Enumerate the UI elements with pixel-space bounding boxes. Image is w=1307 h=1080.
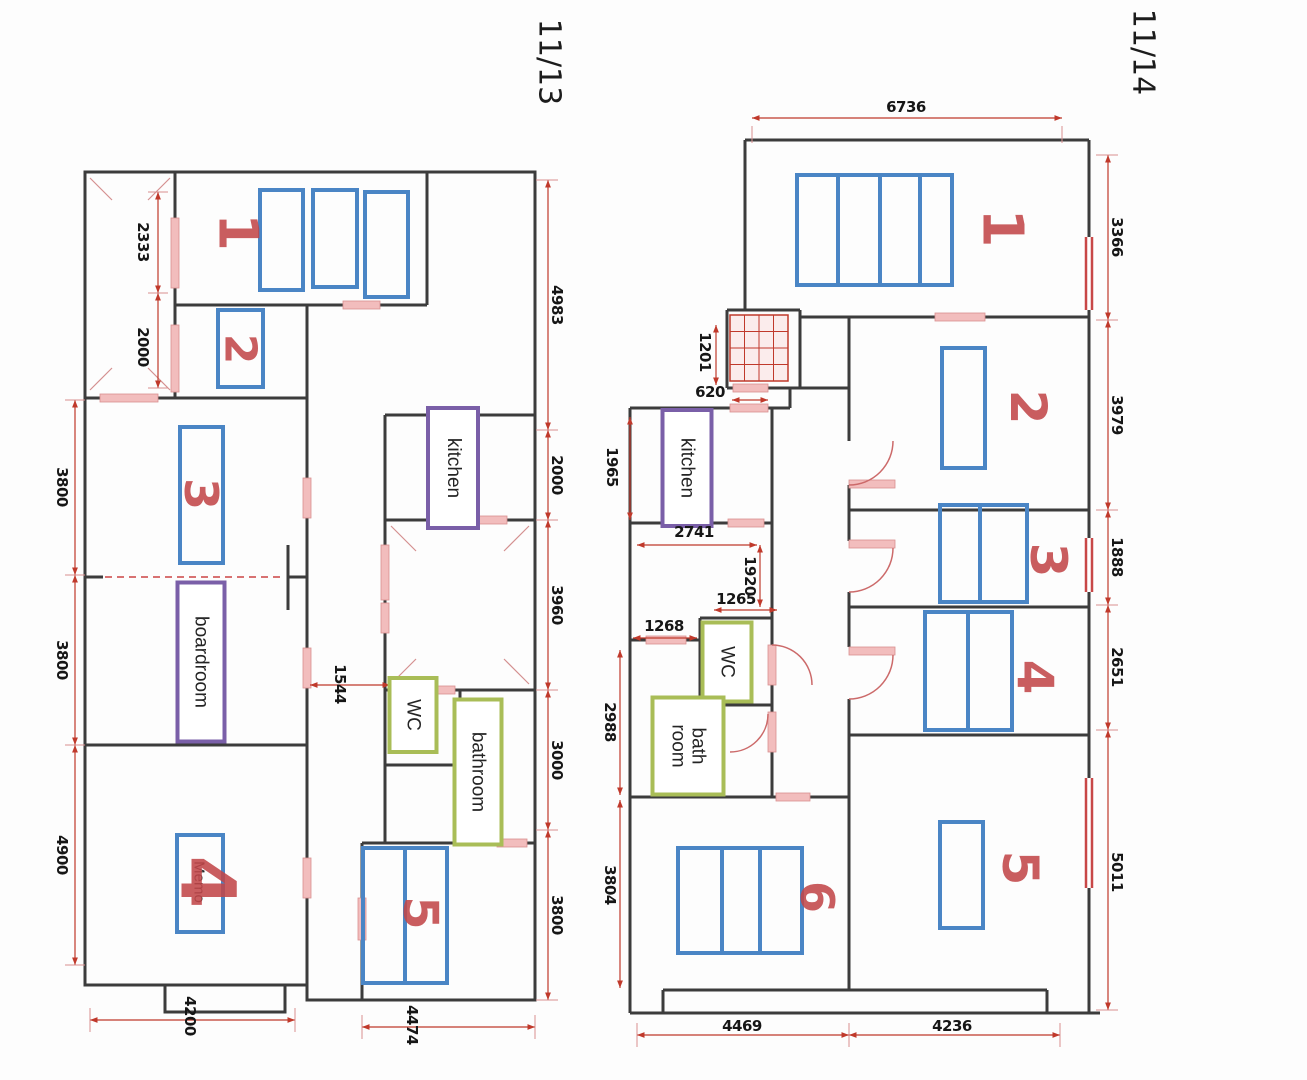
dim-3366: 3366 (1108, 217, 1126, 257)
dim-1965: 1965 (603, 447, 621, 487)
room-number-5-right: 5 (991, 851, 1049, 886)
dim-2988: 2988 (601, 702, 619, 742)
dim-3979: 3979 (1108, 395, 1126, 435)
dim-3804: 3804 (601, 865, 619, 905)
dim-1265: 1265 (716, 590, 756, 608)
dim-3960: 3960 (548, 585, 566, 625)
dim-5011: 5011 (1108, 852, 1126, 892)
floorplan-scan: 11/13 11/14 2333 2000 3800 3800 4900 498… (0, 0, 1307, 1080)
kitchen-label-left: kitchen (426, 406, 480, 530)
dim-1888: 1888 (1108, 537, 1126, 577)
kitchen-label-left-text: kitchen (443, 438, 463, 498)
right-plan-extension-ticks (637, 126, 1118, 1047)
dim-4983: 4983 (548, 285, 566, 325)
room-number-1-right: 1 (970, 209, 1035, 248)
dim-1268: 1268 (644, 617, 684, 635)
wc-label-left: WC (388, 676, 439, 754)
dim-1201: 1201 (696, 332, 714, 372)
dim-2000-right: 2000 (548, 455, 566, 495)
dim-4200: 4200 (181, 996, 199, 1036)
right-plan-furniture (678, 175, 1027, 953)
stairs-grid (730, 315, 788, 381)
kitchen-label-right: kitchen (661, 408, 714, 528)
dim-4469: 4469 (722, 1017, 762, 1035)
bathroom-label-left-text: bathroom (468, 732, 488, 812)
boardroom-label: boardroom (176, 581, 227, 744)
room-number-4-left: 4 (164, 856, 253, 909)
room-number-2-right: 2 (999, 390, 1057, 425)
room-number-1-left: 1 (207, 213, 270, 251)
bathroom-label-left: bathroom (453, 698, 504, 847)
dim-4900: 4900 (53, 835, 71, 875)
dim-3800-b: 3800 (53, 640, 71, 680)
page-number-left: 11/13 (532, 19, 567, 105)
kitchen-label-right-text: kitchen (677, 438, 697, 498)
dim-4474: 4474 (403, 1005, 421, 1045)
left-plan-extension-ticks (65, 180, 558, 1039)
bathroom-label-line1: bath (688, 728, 708, 765)
bathroom-label-line2: room (668, 724, 688, 767)
wc-label-right-text: WC (717, 646, 737, 678)
room-number-6-right: 6 (790, 881, 844, 913)
wc-label-left-text: WC (403, 699, 423, 731)
dim-620: 620 (695, 383, 725, 401)
dim-2333: 2333 (134, 222, 152, 262)
dim-6736: 6736 (886, 98, 926, 116)
bathroom-label-right: bath room (651, 696, 726, 797)
room-number-4-right: 4 (1006, 660, 1064, 695)
room-number-3-left: 3 (174, 478, 228, 510)
dim-3800-right: 3800 (548, 895, 566, 935)
bathroom-label-right-stack: bath room (668, 724, 708, 767)
room-number-5-left: 5 (392, 896, 448, 929)
boardroom-label-text: boardroom (191, 616, 211, 708)
dim-2651: 2651 (1108, 647, 1126, 687)
left-plan-dimension-lines (75, 180, 548, 1027)
room-number-3-right: 3 (1019, 543, 1077, 578)
dim-2741: 2741 (674, 523, 714, 541)
wc-label-right: WC (701, 621, 754, 704)
dim-2000-left: 2000 (134, 327, 152, 367)
dim-1544: 1544 (331, 664, 349, 704)
dim-3000: 3000 (548, 740, 566, 780)
dim-3800-a: 3800 (53, 467, 71, 507)
page-number-right: 11/14 (1126, 9, 1161, 95)
dim-4236: 4236 (932, 1017, 972, 1035)
room-number-2-left: 2 (215, 334, 266, 365)
